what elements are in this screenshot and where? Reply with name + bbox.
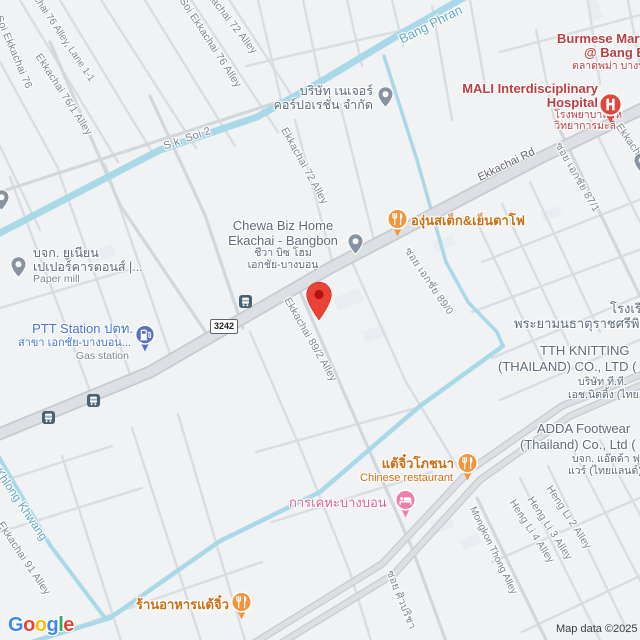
- poi-burmese-mart-line2[interactable]: @ Bang Bo: [584, 46, 640, 61]
- poi-tth-line4: เอช.นิตติ้ง (ไทย...: [568, 390, 640, 402]
- lodging-icon[interactable]: [394, 489, 417, 518]
- poi-paper-mill-line1: บจก. ยูเนียน: [33, 246, 143, 260]
- restaurant-icon[interactable]: [456, 452, 479, 481]
- generic-place-pin-icon[interactable]: [347, 233, 364, 255]
- destination-marker-pin[interactable]: [305, 281, 333, 321]
- generic-place-pin-icon[interactable]: [10, 256, 27, 278]
- poi-mali-hospital-line4: วิทยาการมะลิ: [466, 121, 616, 133]
- logo-letter: e: [63, 614, 74, 636]
- poi-nature-corp-line2: คอร์ปอเรชั่น จำกัด: [260, 98, 373, 112]
- bus-stop-icon[interactable]: [87, 394, 100, 407]
- bus-stop-icon[interactable]: [239, 295, 252, 308]
- poi-school-line2[interactable]: พระยามนธาตุราชศรีพิจิ: [514, 317, 640, 332]
- poi-kankeha-label[interactable]: การเคหะบางบอน: [289, 496, 387, 511]
- poi-taejiew-restaurant-label[interactable]: ร้านอาหารแต้จิ๋ว: [136, 598, 229, 613]
- logo-letter: g: [47, 614, 59, 636]
- poi-adda-line1[interactable]: ADDA Footwear: [537, 422, 630, 437]
- poi-burmese-mart-line3: ตลาดพม่า บางบ: [572, 61, 640, 73]
- gas-station-icon[interactable]: [134, 324, 156, 352]
- restaurant-icon[interactable]: [386, 208, 409, 237]
- poi-tth-line3: บริษัท ที.ที.: [578, 377, 627, 389]
- poi-paper-mill-label[interactable]: บจก. ยูเนียน เปเปอร์คารตอนส์ |... Paper …: [33, 246, 143, 286]
- generic-place-pin-icon: [0, 189, 10, 211]
- poi-chinese-restaurant-line1[interactable]: แต้จิ๋วโภชนา: [350, 457, 454, 472]
- poi-tth-line1[interactable]: TTH KNITTING: [540, 344, 630, 359]
- poi-ptt-category: Gas station: [0, 351, 129, 363]
- poi-paper-mill-line2: เปเปอร์คารตอนส์ |...: [33, 260, 143, 274]
- bus-stop-icon[interactable]: [42, 411, 55, 424]
- poi-chewa-line4: เอกชัย-บางบอน: [213, 260, 353, 272]
- poi-chewa-label[interactable]: Chewa Biz Home Ekachai - Bangbon ชีวา บิ…: [213, 219, 353, 272]
- logo-letter: o: [23, 614, 35, 636]
- map-canvas[interactable]: Soi Ekkachai 76 Ekkachai 76 Alley, Lane …: [0, 0, 640, 640]
- hospital-icon[interactable]: [597, 92, 624, 124]
- poi-chinese-restaurant-line2: Chinese restaurant: [350, 472, 453, 484]
- logo-letter: G: [8, 614, 23, 636]
- logo-letter: o: [35, 614, 47, 636]
- route-shield-3242: 3242: [210, 319, 238, 334]
- poi-nature-corp-line1: บริษัท เนเจอร์: [260, 84, 373, 98]
- google-logo[interactable]: Google: [8, 614, 74, 637]
- poi-adda-line4: แวร์ (ไทยแลนด์): [568, 466, 640, 478]
- generic-place-pin-icon: [633, 152, 640, 174]
- poi-chewa-line2: Ekachai - Bangbon: [213, 234, 353, 249]
- map-data-attribution: Map data ©2025: [556, 623, 638, 635]
- poi-ptt-line2: สาขา เอกชัย-บางบอน...: [0, 337, 131, 349]
- generic-place-pin-icon[interactable]: [377, 86, 394, 108]
- poi-tth-line2[interactable]: (THAILAND) CO., LTD (: [498, 360, 636, 375]
- poi-paper-mill-category: Paper mill: [33, 274, 143, 286]
- restaurant-icon[interactable]: [230, 591, 253, 620]
- poi-chewa-line1: Chewa Biz Home: [213, 219, 353, 234]
- poi-grape-restaurant-label[interactable]: องุ่นสเต็ก&เย็นตาโฟ: [411, 214, 525, 229]
- poi-adda-line2[interactable]: (Thailand) Co., Ltd (: [520, 438, 636, 453]
- poi-school-line1[interactable]: โรงเรี: [610, 302, 640, 317]
- poi-adda-line3: บจก. แอ๊ดด้า ฟุต: [572, 454, 640, 466]
- poi-ptt-line1[interactable]: PTT Station ปตท.: [0, 322, 133, 337]
- poi-nature-corp-label[interactable]: บริษัท เนเจอร์ คอร์ปอเรชั่น จำกัด: [260, 84, 373, 112]
